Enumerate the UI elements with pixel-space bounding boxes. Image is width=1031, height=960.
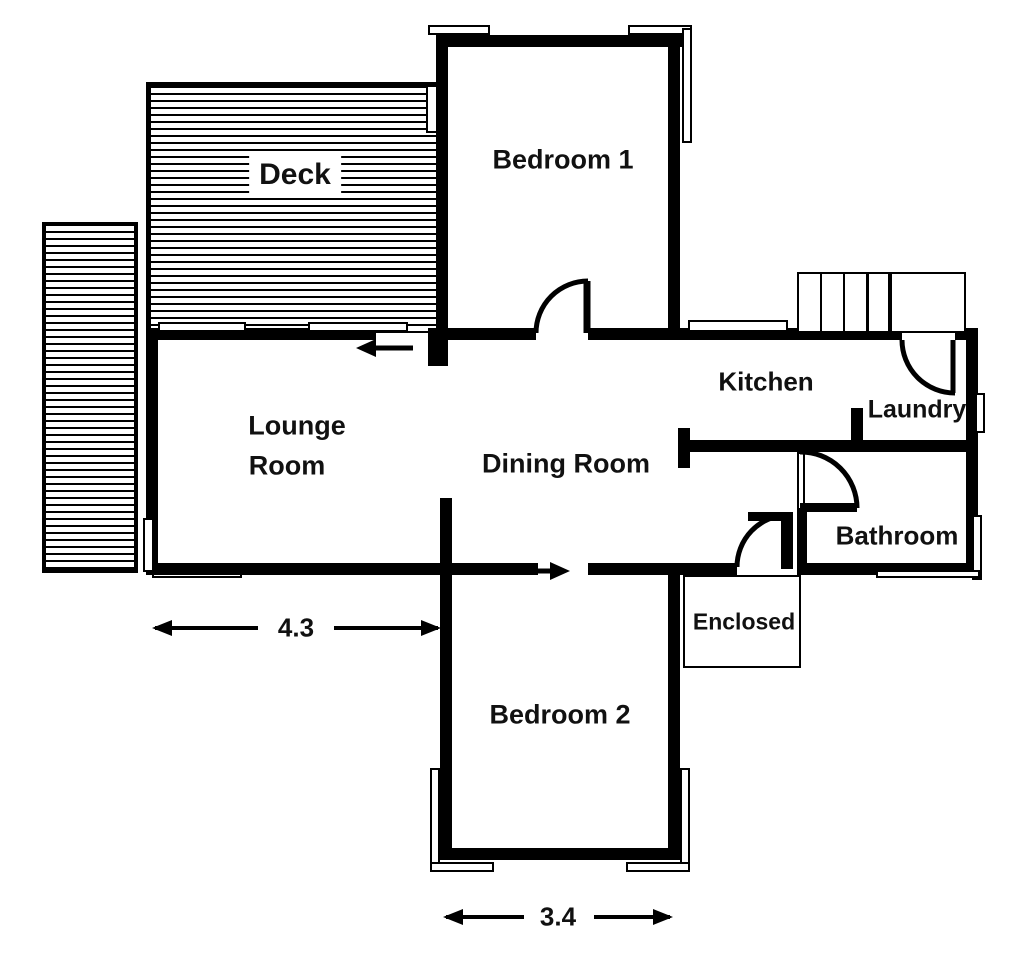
bathroom-label: Bathroom [836, 521, 959, 552]
kitchen-label: Kitchen [718, 367, 813, 398]
entry-arrow-left [356, 339, 413, 357]
floor-plan: Deck Bedroom 1 Kitchen Laundry Lounge Ro… [0, 0, 1031, 960]
bedroom1-label: Bedroom 1 [492, 145, 633, 176]
laundry-label: Laundry [868, 396, 967, 425]
bedroom2-label: Bedroom 2 [489, 700, 630, 731]
lounge-label-line2: Room [249, 451, 326, 482]
door-arc [902, 340, 955, 393]
deck-label: Deck [249, 156, 341, 194]
dimension-value-lounge: 4.3 [270, 613, 322, 644]
door-arc [536, 281, 588, 333]
door-arc [737, 515, 787, 567]
lounge-label-line1: Lounge [248, 411, 345, 442]
entry-arrow-right [512, 562, 570, 580]
dining-label: Dining Room [482, 449, 650, 480]
door-arc [800, 452, 857, 508]
enclosed-label: Enclosed [693, 609, 795, 636]
dimension-value-bedroom2: 3.4 [532, 902, 584, 933]
